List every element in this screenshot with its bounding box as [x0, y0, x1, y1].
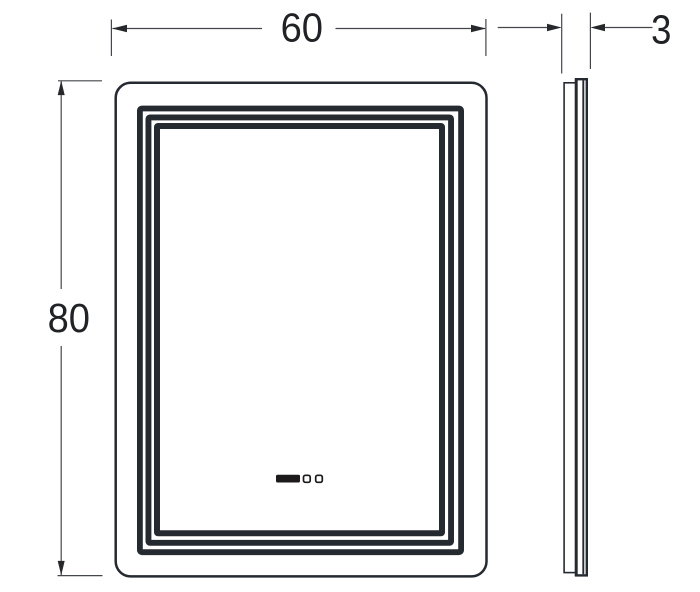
svg-text:3: 3 — [651, 7, 671, 53]
svg-text:80: 80 — [48, 295, 90, 341]
svg-text:60: 60 — [281, 4, 323, 50]
